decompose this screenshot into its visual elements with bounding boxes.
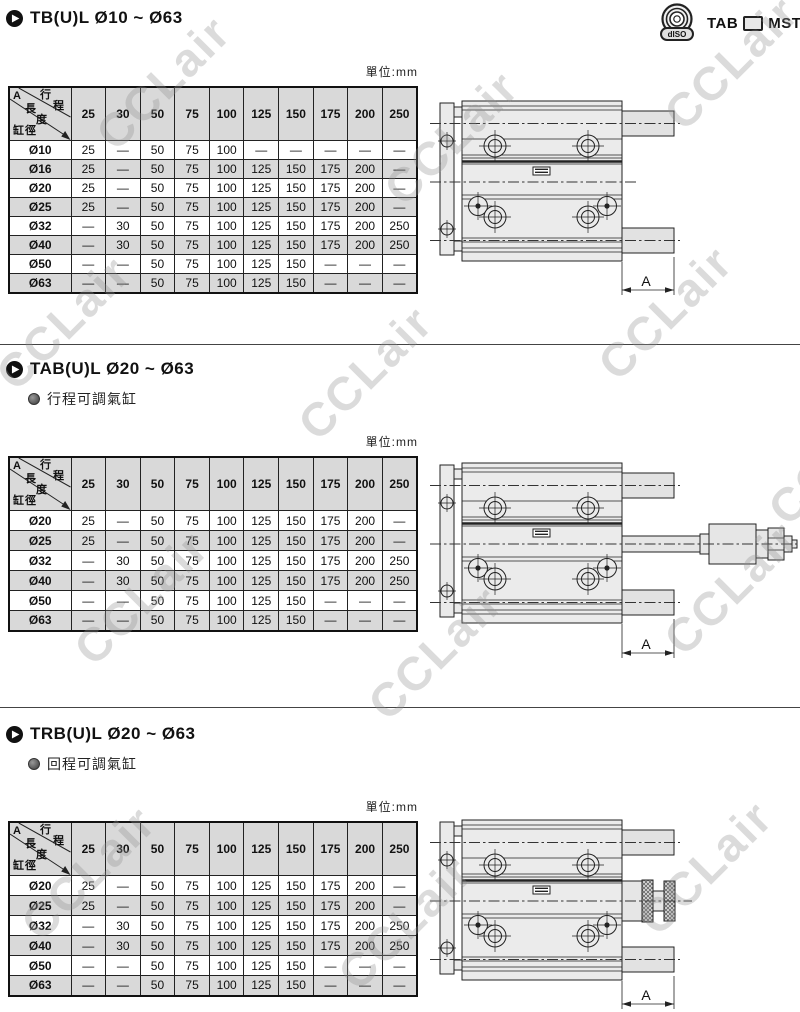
stroke-cell: 100 — [209, 160, 244, 179]
unit-label: 單位:mm — [8, 798, 418, 815]
stroke-cell: 125 — [244, 179, 279, 198]
stroke-cell: 150 — [279, 571, 314, 591]
bore-row-label: Ø50 — [9, 591, 71, 611]
stroke-cell: 100 — [209, 274, 244, 293]
stroke-cell: 100 — [209, 876, 244, 896]
stroke-cell: 125 — [244, 551, 279, 571]
stroke-cell: 125 — [244, 198, 279, 217]
stroke-cell: 200 — [348, 179, 383, 198]
corner-length-char1: 長 — [25, 474, 36, 485]
stroke-cell: — — [313, 976, 348, 996]
stroke-cell: 50 — [140, 217, 175, 236]
stroke-cell: 100 — [209, 511, 244, 531]
table-row: Ø2025—5075100125150175200— — [9, 876, 417, 896]
corner-stroke-char2: 程 — [53, 836, 64, 847]
stroke-column-header: 25 — [71, 87, 106, 141]
stroke-cell: 50 — [140, 591, 175, 611]
corner-a-label: A — [13, 826, 21, 837]
stroke-cell: 200 — [348, 198, 383, 217]
header-row: A 行 程 長 度 缸徑 25305075100125150175200250 — [9, 822, 417, 876]
stroke-cell: 100 — [209, 198, 244, 217]
stroke-cell: 125 — [244, 591, 279, 611]
stroke-cell: 75 — [175, 916, 210, 936]
stroke-cell: 200 — [348, 551, 383, 571]
stroke-column-header: 200 — [348, 87, 383, 141]
stroke-cell: — — [106, 611, 141, 631]
corner-length-char2: 度 — [36, 115, 47, 126]
stroke-cell: 150 — [279, 236, 314, 255]
stroke-cell: — — [71, 274, 106, 293]
stroke-cell: — — [106, 141, 141, 160]
bore-row-label: Ø20 — [9, 179, 71, 198]
stroke-cell: 25 — [71, 511, 106, 531]
stroke-cell: 75 — [175, 551, 210, 571]
bore-row-label: Ø32 — [9, 916, 71, 936]
stroke-cell: 200 — [348, 916, 383, 936]
stroke-cell: 50 — [140, 571, 175, 591]
stroke-cell: — — [71, 551, 106, 571]
stroke-table-tbul: A 行 程 長 度 缸徑 25305075100125150175200250 … — [8, 86, 418, 294]
stroke-cell: 200 — [348, 236, 383, 255]
bore-row-label: Ø50 — [9, 956, 71, 976]
stroke-cell: 175 — [313, 571, 348, 591]
corner-length-char2: 度 — [36, 485, 47, 496]
stroke-cell: — — [71, 916, 106, 936]
bore-row-label: Ø32 — [9, 217, 71, 236]
stroke-cell: 25 — [71, 896, 106, 916]
stroke-cell: 75 — [175, 876, 210, 896]
stroke-cell: 150 — [279, 976, 314, 996]
stroke-cell: 150 — [279, 611, 314, 631]
stroke-cell: 175 — [313, 236, 348, 255]
stroke-cell: 50 — [140, 916, 175, 936]
stroke-column-header: 250 — [382, 87, 417, 141]
stroke-column-header: 30 — [106, 87, 141, 141]
stroke-column-header: 150 — [279, 457, 314, 511]
subtitle-text: 行程可調氣缸 — [47, 389, 137, 409]
table-row: Ø50——5075100125150——— — [9, 591, 417, 611]
stroke-cell: 250 — [382, 236, 417, 255]
table-row: Ø2525—5075100125150175200— — [9, 896, 417, 916]
stroke-cell: — — [106, 511, 141, 531]
stroke-cell: — — [71, 236, 106, 255]
stroke-cell: 75 — [175, 511, 210, 531]
cylinder-diagram-trbul: A — [430, 810, 800, 1012]
stroke-cell: 150 — [279, 956, 314, 976]
stroke-cell: 125 — [244, 956, 279, 976]
stroke-cell: 100 — [209, 236, 244, 255]
stroke-column-header: 150 — [279, 822, 314, 876]
stroke-cell: — — [313, 956, 348, 976]
stroke-cell: — — [348, 591, 383, 611]
stroke-cell: 50 — [140, 976, 175, 996]
stroke-cell: — — [313, 274, 348, 293]
play-icon — [6, 361, 23, 378]
corner-a-label: A — [13, 91, 21, 102]
corner-a-label: A — [13, 461, 21, 472]
stroke-column-header: 175 — [313, 457, 348, 511]
bore-row-label: Ø20 — [9, 876, 71, 896]
stroke-column-header: 175 — [313, 822, 348, 876]
stroke-cell: — — [106, 274, 141, 293]
stroke-cell: 75 — [175, 896, 210, 916]
stroke-column-header: 25 — [71, 457, 106, 511]
stroke-cell: 250 — [382, 217, 417, 236]
stroke-cell: 125 — [244, 255, 279, 274]
stroke-cell: 150 — [279, 255, 314, 274]
section-title-text: TRB(U)L Ø20 ~ Ø63 — [30, 724, 195, 744]
table-row: Ø2525—5075100125150175200— — [9, 198, 417, 217]
stroke-cell: 100 — [209, 896, 244, 916]
stroke-cell: 100 — [209, 591, 244, 611]
cylinder-diagram-tbul: A — [430, 90, 800, 302]
stroke-cell: 100 — [209, 141, 244, 160]
stroke-cell: — — [71, 255, 106, 274]
table-row: Ø2525—5075100125150175200— — [9, 531, 417, 551]
stroke-cell: 75 — [175, 141, 210, 160]
stroke-cell: 100 — [209, 976, 244, 996]
stroke-cell: 175 — [313, 179, 348, 198]
table-row: Ø1625—5075100125150175200— — [9, 160, 417, 179]
stroke-cell: 50 — [140, 956, 175, 976]
cylinder-diagram-tabul: A — [430, 450, 800, 665]
stroke-cell: 150 — [279, 916, 314, 936]
stroke-cell: 200 — [348, 571, 383, 591]
stroke-cell: 175 — [313, 511, 348, 531]
stroke-cell: — — [348, 141, 383, 160]
stroke-cell: 125 — [244, 274, 279, 293]
stroke-cell: 100 — [209, 217, 244, 236]
stroke-cell: 75 — [175, 956, 210, 976]
stroke-cell: 75 — [175, 936, 210, 956]
stroke-column-header: 75 — [175, 457, 210, 511]
header-row: A 行 程 長 度 缸徑 25305075100125150175200250 — [9, 87, 417, 141]
stroke-cell: — — [348, 255, 383, 274]
stroke-cell: — — [106, 198, 141, 217]
stroke-cell: 200 — [348, 936, 383, 956]
stroke-cell: — — [106, 896, 141, 916]
stroke-cell: 200 — [348, 896, 383, 916]
stroke-cell: 150 — [279, 551, 314, 571]
table-row: Ø40—305075100125150175200250 — [9, 571, 417, 591]
stroke-cell: 200 — [348, 531, 383, 551]
bore-row-label: Ø25 — [9, 896, 71, 916]
badge-label-tab: TAB — [707, 15, 738, 32]
bore-row-label: Ø32 — [9, 551, 71, 571]
stroke-cell: 150 — [279, 591, 314, 611]
corner-bore-label: 缸徑 — [13, 496, 37, 507]
stroke-cell: 75 — [175, 274, 210, 293]
stroke-cell: 250 — [382, 571, 417, 591]
stroke-cell: — — [106, 531, 141, 551]
stroke-cell: 125 — [244, 936, 279, 956]
stroke-column-header: 150 — [279, 87, 314, 141]
stroke-cell: 175 — [313, 551, 348, 571]
stroke-cell: 30 — [106, 936, 141, 956]
stroke-cell: 250 — [382, 936, 417, 956]
stroke-cell: 150 — [279, 511, 314, 531]
bore-row-label: Ø63 — [9, 611, 71, 631]
bore-row-label: Ø63 — [9, 976, 71, 996]
stroke-cell: 175 — [313, 876, 348, 896]
watermark-text: CCLair — [287, 294, 443, 450]
stroke-cell: 30 — [106, 551, 141, 571]
stroke-cell: — — [382, 274, 417, 293]
stroke-cell: — — [106, 160, 141, 179]
corner-length-char1: 長 — [25, 839, 36, 850]
stroke-cell: 175 — [313, 896, 348, 916]
unit-label: 單位:mm — [8, 63, 418, 80]
stroke-cell: 30 — [106, 236, 141, 255]
stroke-cell: 50 — [140, 511, 175, 531]
disc-iso-icon: dISO — [655, 3, 701, 43]
stroke-cell: 125 — [244, 531, 279, 551]
stroke-cell: — — [71, 936, 106, 956]
stroke-cell: — — [313, 141, 348, 160]
page-title: TB(U)L Ø10 ~ Ø63 — [30, 8, 183, 28]
stroke-column-header: 125 — [244, 87, 279, 141]
play-icon — [6, 726, 23, 743]
stroke-cell: 50 — [140, 896, 175, 916]
stroke-column-header: 50 — [140, 457, 175, 511]
stroke-cell: 100 — [209, 551, 244, 571]
stroke-cell: 125 — [244, 511, 279, 531]
stroke-cell: — — [313, 255, 348, 274]
stroke-cell: 75 — [175, 591, 210, 611]
stroke-cell: 175 — [313, 916, 348, 936]
section-divider — [0, 707, 800, 708]
stroke-cell: 125 — [244, 876, 279, 896]
stroke-column-header: 100 — [209, 87, 244, 141]
bullet-icon — [28, 758, 40, 770]
stroke-cell: — — [382, 141, 417, 160]
table-row: Ø63——5075100125150——— — [9, 274, 417, 293]
stroke-cell: 175 — [313, 217, 348, 236]
stroke-cell: — — [348, 611, 383, 631]
stroke-cell: 175 — [313, 160, 348, 179]
stroke-cell: — — [106, 591, 141, 611]
stroke-cell: 150 — [279, 179, 314, 198]
stroke-column-header: 100 — [209, 822, 244, 876]
unit-label: 單位:mm — [8, 433, 418, 450]
stroke-column-header: 30 — [106, 822, 141, 876]
stroke-cell: 125 — [244, 217, 279, 236]
corner-length-char1: 長 — [25, 104, 36, 115]
stroke-cell: 125 — [244, 976, 279, 996]
stroke-cell: 100 — [209, 571, 244, 591]
bullet-icon — [28, 393, 40, 405]
stroke-cell: — — [106, 876, 141, 896]
stroke-cell: — — [71, 611, 106, 631]
stroke-cell: 125 — [244, 160, 279, 179]
stroke-cell: 175 — [313, 936, 348, 956]
stroke-cell: 50 — [140, 160, 175, 179]
stroke-cell: 125 — [244, 896, 279, 916]
play-icon — [6, 10, 23, 27]
stroke-cell: 30 — [106, 571, 141, 591]
table-row: Ø40—305075100125150175200250 — [9, 236, 417, 255]
stroke-cell: 250 — [382, 916, 417, 936]
stroke-cell: — — [348, 956, 383, 976]
badge-label-mst: MST — [768, 15, 800, 32]
stroke-cell: — — [382, 976, 417, 996]
stroke-cell: — — [106, 976, 141, 996]
corner-stroke-char1: 行 — [40, 90, 51, 101]
stroke-cell: 100 — [209, 611, 244, 631]
stroke-cell: 150 — [279, 896, 314, 916]
stroke-cell: 50 — [140, 141, 175, 160]
dimension-a-label: A — [641, 273, 651, 289]
stroke-column-header: 25 — [71, 822, 106, 876]
stroke-cell: 100 — [209, 255, 244, 274]
stroke-cell: 100 — [209, 531, 244, 551]
stroke-cell: 125 — [244, 916, 279, 936]
stroke-cell: 125 — [244, 236, 279, 255]
stroke-cell: — — [71, 956, 106, 976]
stroke-cell: 50 — [140, 936, 175, 956]
corner-stroke-char1: 行 — [40, 460, 51, 471]
bore-row-label: Ø20 — [9, 511, 71, 531]
stroke-cell: 75 — [175, 198, 210, 217]
stroke-cell: 125 — [244, 611, 279, 631]
stroke-cell: 30 — [106, 916, 141, 936]
stroke-cell: — — [106, 179, 141, 198]
stroke-cell: — — [382, 160, 417, 179]
subtitle-tabul: 行程可調氣缸 — [28, 389, 137, 409]
stroke-cell: 25 — [71, 198, 106, 217]
section-title-tabul: TAB(U)L Ø20 ~ Ø63 — [6, 359, 194, 379]
stroke-cell: 25 — [71, 876, 106, 896]
stroke-column-header: 30 — [106, 457, 141, 511]
stroke-cell: 50 — [140, 611, 175, 631]
bore-row-label: Ø40 — [9, 571, 71, 591]
stroke-cell: 50 — [140, 876, 175, 896]
stroke-cell: 150 — [279, 160, 314, 179]
stroke-cell: 75 — [175, 255, 210, 274]
stroke-cell: — — [382, 611, 417, 631]
stroke-cell: 50 — [140, 551, 175, 571]
stroke-cell: — — [382, 179, 417, 198]
stroke-column-header: 100 — [209, 457, 244, 511]
section-divider — [0, 344, 800, 345]
bore-row-label: Ø63 — [9, 274, 71, 293]
table-row: Ø50——5075100125150——— — [9, 956, 417, 976]
stroke-cell: 175 — [313, 198, 348, 217]
bore-row-label: Ø10 — [9, 141, 71, 160]
table-row: Ø1025—5075100————— — [9, 141, 417, 160]
stroke-cell: 200 — [348, 217, 383, 236]
table-row: Ø63——5075100125150——— — [9, 976, 417, 996]
stroke-column-header: 75 — [175, 87, 210, 141]
table-row: Ø32—305075100125150175200250 — [9, 551, 417, 571]
dimension-a-label: A — [641, 987, 651, 1003]
stroke-cell: 75 — [175, 976, 210, 996]
stroke-column-header: 200 — [348, 822, 383, 876]
stroke-cell: 25 — [71, 141, 106, 160]
stroke-cell: — — [71, 976, 106, 996]
stroke-cell: 50 — [140, 179, 175, 198]
table-row: Ø63——5075100125150——— — [9, 611, 417, 631]
bore-row-label: Ø25 — [9, 531, 71, 551]
section-title-text: TAB(U)L Ø20 ~ Ø63 — [30, 359, 194, 379]
section-title-tbul: TB(U)L Ø10 ~ Ø63 — [6, 8, 183, 28]
stroke-table-trbul: A 行 程 長 度 缸徑 25305075100125150175200250 … — [8, 821, 418, 997]
brand-badge: dISO TAB MST — [655, 3, 800, 43]
stroke-cell: 100 — [209, 936, 244, 956]
stroke-cell: 75 — [175, 236, 210, 255]
stroke-cell: 250 — [382, 551, 417, 571]
corner-stroke-char1: 行 — [40, 825, 51, 836]
stroke-table-tabul: A 行 程 長 度 缸徑 25305075100125150175200250 … — [8, 456, 418, 632]
stroke-column-header: 250 — [382, 457, 417, 511]
corner-header: A 行 程 長 度 缸徑 — [9, 457, 71, 511]
stroke-cell: 100 — [209, 956, 244, 976]
badge-square-icon — [743, 16, 763, 31]
stroke-cell: — — [382, 876, 417, 896]
bore-row-label: Ø16 — [9, 160, 71, 179]
stroke-cell: 75 — [175, 217, 210, 236]
section-title-trbul: TRB(U)L Ø20 ~ Ø63 — [6, 724, 195, 744]
corner-bore-label: 缸徑 — [13, 126, 37, 137]
table-row: Ø50——5075100125150——— — [9, 255, 417, 274]
stroke-cell: 200 — [348, 876, 383, 896]
stroke-cell: 25 — [71, 179, 106, 198]
stroke-cell: 30 — [106, 217, 141, 236]
stroke-cell: 25 — [71, 160, 106, 179]
stroke-cell: 50 — [140, 236, 175, 255]
stroke-cell: 50 — [140, 531, 175, 551]
disc-badge-text: dISO — [668, 30, 687, 39]
subtitle-trbul: 回程可調氣缸 — [28, 754, 137, 774]
stroke-cell: 50 — [140, 274, 175, 293]
stroke-cell: 100 — [209, 916, 244, 936]
stroke-column-header: 250 — [382, 822, 417, 876]
stroke-cell: — — [382, 956, 417, 976]
header-row: A 行 程 長 度 缸徑 25305075100125150175200250 — [9, 457, 417, 511]
stroke-cell: — — [313, 611, 348, 631]
stroke-cell: 200 — [348, 511, 383, 531]
stroke-cell: 150 — [279, 876, 314, 896]
subtitle-text: 回程可調氣缸 — [47, 754, 137, 774]
stroke-cell: — — [106, 255, 141, 274]
stroke-cell: — — [348, 274, 383, 293]
stroke-column-header: 125 — [244, 822, 279, 876]
stroke-cell: — — [382, 591, 417, 611]
stroke-cell: — — [382, 511, 417, 531]
badge-labels: TAB MST — [707, 15, 800, 32]
corner-length-char2: 度 — [36, 850, 47, 861]
stroke-cell: — — [382, 198, 417, 217]
stroke-cell: 75 — [175, 611, 210, 631]
table-row: Ø32—305075100125150175200250 — [9, 916, 417, 936]
stroke-column-header: 50 — [140, 822, 175, 876]
stroke-cell: — — [71, 571, 106, 591]
bore-row-label: Ø40 — [9, 236, 71, 255]
stroke-cell: 150 — [279, 531, 314, 551]
stroke-cell: — — [313, 591, 348, 611]
stroke-cell: 175 — [313, 531, 348, 551]
stroke-cell: — — [382, 255, 417, 274]
dimension-a-label: A — [641, 636, 651, 652]
stroke-cell: 100 — [209, 179, 244, 198]
stroke-cell: 150 — [279, 274, 314, 293]
stroke-column-header: 75 — [175, 822, 210, 876]
stroke-cell: 150 — [279, 217, 314, 236]
corner-header: A 行 程 長 度 缸徑 — [9, 822, 71, 876]
stroke-cell: — — [244, 141, 279, 160]
stroke-cell: 75 — [175, 531, 210, 551]
stroke-cell: 150 — [279, 936, 314, 956]
